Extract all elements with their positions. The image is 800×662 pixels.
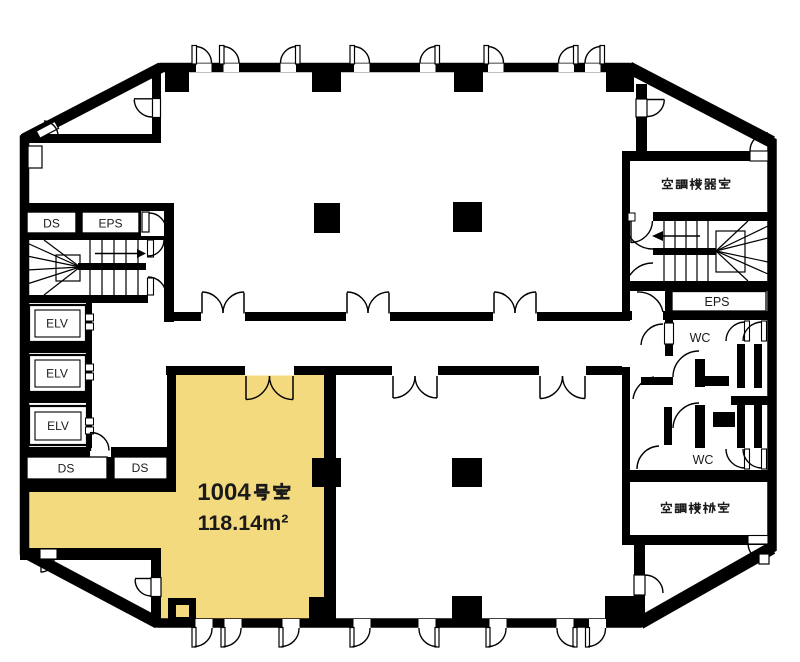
svg-text:ELV: ELV xyxy=(47,419,69,433)
svg-text:WC: WC xyxy=(690,331,711,345)
svg-text:WC: WC xyxy=(693,453,714,467)
svg-text:DS: DS xyxy=(43,217,60,231)
svg-text:118.14m²: 118.14m² xyxy=(198,511,289,535)
svg-text:ELV: ELV xyxy=(46,367,68,381)
svg-text:ELV: ELV xyxy=(46,317,68,331)
svg-text:1004: 1004 xyxy=(197,479,251,506)
svg-text:DS: DS xyxy=(58,462,75,476)
svg-text:DS: DS xyxy=(132,461,149,475)
svg-text:EPS: EPS xyxy=(704,295,729,309)
svg-text:EPS: EPS xyxy=(98,217,122,231)
